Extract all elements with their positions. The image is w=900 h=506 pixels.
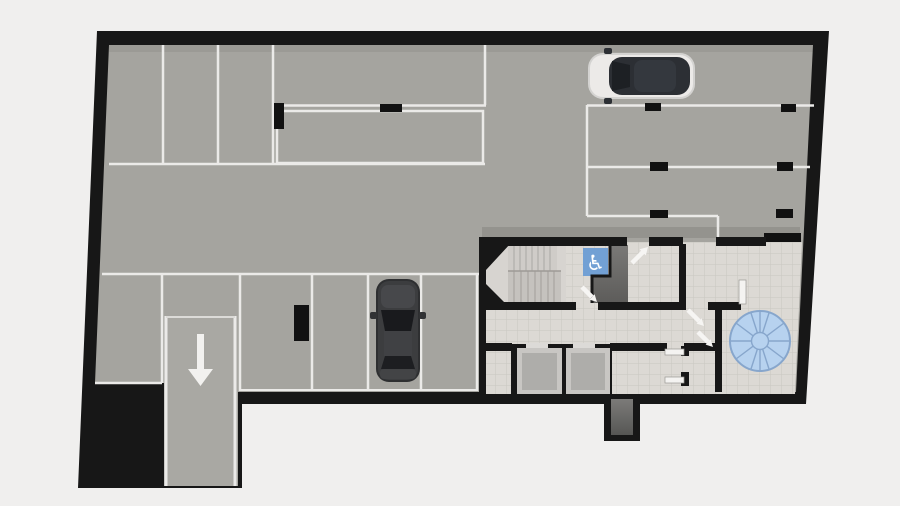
floor-plan-page: ♿ xyxy=(0,0,900,506)
dark-grey-car xyxy=(370,279,426,382)
car-mirror xyxy=(604,98,612,104)
elevator-door-sill xyxy=(526,343,548,348)
accessible-parking-sign: ♿ xyxy=(583,248,608,276)
door-leaf xyxy=(665,377,684,383)
wheel-stop xyxy=(650,162,668,171)
top-wall-shadow xyxy=(109,45,813,52)
door-leaf xyxy=(739,280,746,304)
elevator-block xyxy=(511,343,612,397)
wheel-stop xyxy=(776,209,793,218)
wheel-stop xyxy=(380,104,402,112)
car-mirror xyxy=(370,312,377,319)
wheelchair-icon: ♿ xyxy=(586,251,605,275)
column xyxy=(274,103,284,129)
elevator-shaft-2 xyxy=(566,343,610,394)
ramp-down xyxy=(164,316,238,486)
elevator-shaft-1 xyxy=(517,343,562,394)
core-wall-shadow xyxy=(482,227,800,238)
silver-car xyxy=(588,48,695,104)
wheel-stop xyxy=(650,210,668,218)
wheel-stop xyxy=(645,103,661,111)
wheel-stop xyxy=(781,104,796,112)
elevator-door-sill xyxy=(573,343,595,348)
car-mirror xyxy=(419,312,426,319)
equipment-box xyxy=(294,305,309,341)
core-area: ♿ xyxy=(479,237,802,397)
door-leaf xyxy=(665,349,684,355)
ventilation-fan-icon xyxy=(730,311,790,371)
stairwell xyxy=(486,244,566,304)
wheel-stop xyxy=(777,162,793,171)
stairs-upper-flight xyxy=(508,246,557,271)
car-mirror xyxy=(604,48,612,54)
floor-plan-canvas: ♿ xyxy=(0,0,900,506)
stairs-lower-flight xyxy=(508,271,561,303)
exterior-shaft xyxy=(611,399,633,435)
